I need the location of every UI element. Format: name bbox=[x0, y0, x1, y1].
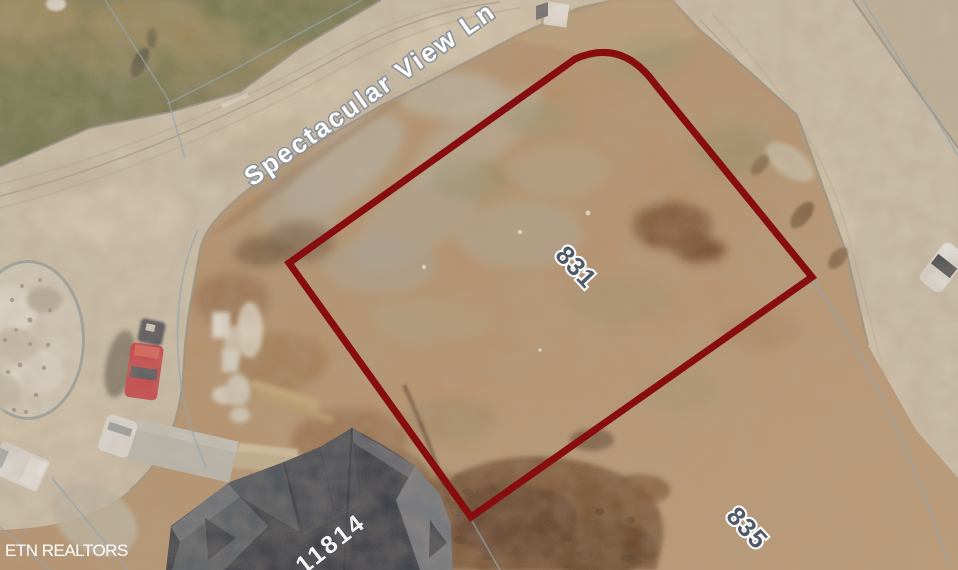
svg-text:ETN REALTORS: ETN REALTORS bbox=[5, 541, 128, 560]
